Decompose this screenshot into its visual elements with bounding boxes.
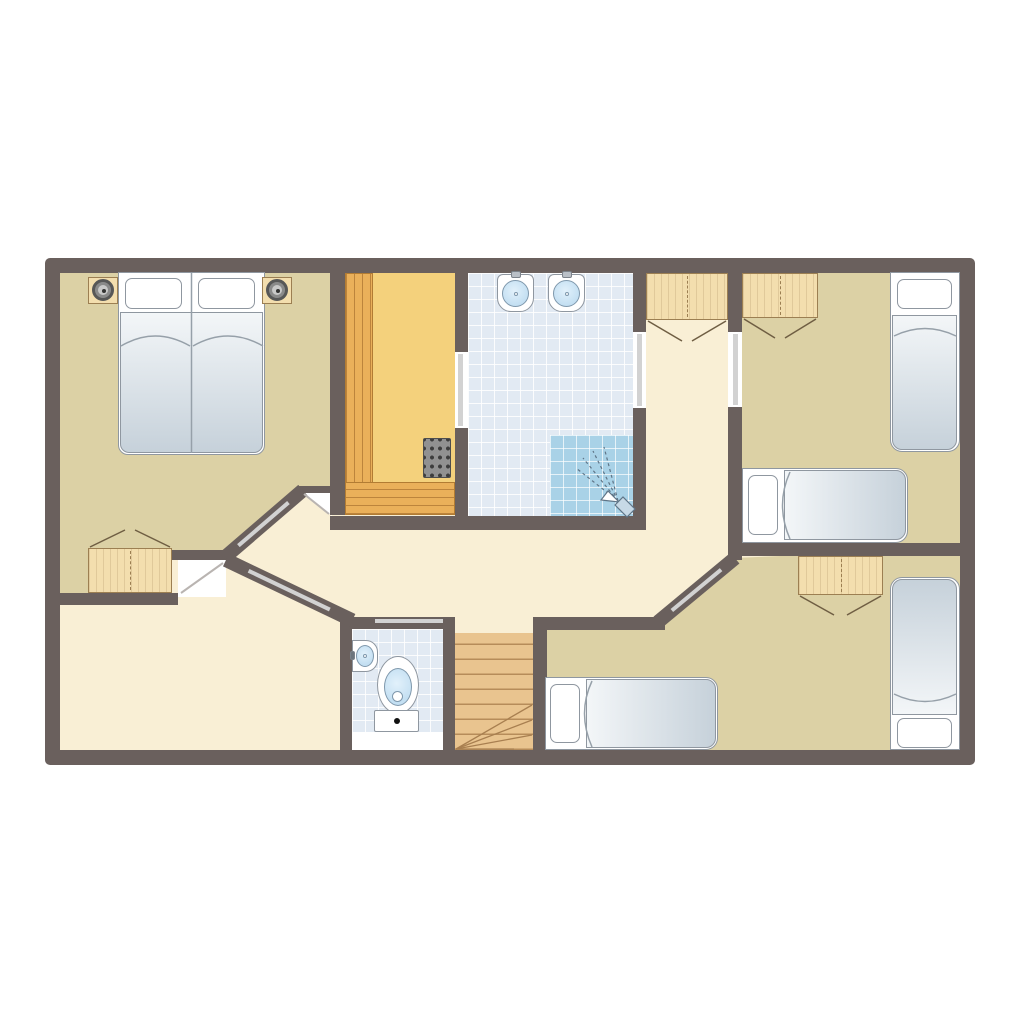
floor-plan-canvas: [0, 0, 1024, 1024]
drain: [565, 292, 569, 296]
wardrobe-split-line: [780, 276, 781, 315]
bed-tr-vertical-duvet: [892, 315, 957, 450]
wall-bedroom-sauna: [330, 273, 345, 515]
wc-hand-basin-faucet: [350, 651, 355, 660]
toilet-flush-hole: [392, 691, 403, 702]
wall-bathroom-left-lower: [455, 428, 468, 517]
wall-sauna-bathroom-bottom: [330, 516, 646, 530]
wall-wc-left: [340, 617, 352, 750]
wall-bathroom-right-lower: [633, 408, 646, 517]
washbasin-left-bowl: [502, 280, 529, 307]
drain: [363, 654, 367, 658]
bed-br-horizontal-pillow: [550, 684, 580, 743]
wc-hand-basin-bowl: [356, 645, 374, 667]
sauna-bench-left: [345, 273, 373, 515]
double-bed-pillow-left: [125, 278, 182, 309]
wardrobe-split-line: [130, 551, 131, 590]
sauna-heater: [423, 438, 451, 478]
shower-area: [550, 435, 633, 517]
wc-glass-panel: [375, 619, 450, 623]
bed-br-horizontal-duvet: [586, 679, 716, 748]
bed-br-vertical-pillow: [897, 718, 952, 748]
door-opening-bottom-left: [178, 560, 226, 597]
wall-bedroom-br-top: [533, 617, 665, 630]
closet-split-line: [687, 276, 688, 317]
lamp-dot: [102, 289, 106, 293]
wall-bedroom-tr-left-lower: [728, 407, 742, 560]
sauna-bench-bottom: [345, 482, 455, 515]
wardrobe-bedroom-tr: [742, 273, 818, 318]
staircase: [455, 633, 533, 750]
wc-floor-white-strip: [352, 732, 443, 750]
floor-plan: [45, 258, 975, 765]
bed-tr-vertical-pillow: [897, 279, 952, 309]
drain: [514, 292, 518, 296]
lamp-left: [92, 279, 114, 301]
sauna-glass-door: [458, 354, 463, 426]
washbasin-right-bowl: [553, 280, 580, 307]
wall-bedroom-tl-bottom: [60, 593, 178, 605]
wall-bathroom-right-upper: [633, 273, 646, 332]
wall-between-right-bedrooms: [735, 543, 960, 556]
washbasin-right-faucet: [562, 271, 572, 278]
double-bed-duvet: [120, 312, 263, 453]
closet-hallway: [646, 273, 728, 320]
wall-bathroom-left-upper: [455, 273, 468, 352]
wardrobe-bedroom-br: [798, 556, 883, 595]
washbasin-left-faucet: [511, 271, 521, 278]
bed-br-vertical-duvet: [892, 579, 957, 715]
bedroom-tr-glass-door: [733, 334, 738, 405]
wall-bedroom-tr-left-upper: [728, 273, 742, 332]
bed-tr-horizontal-duvet: [784, 470, 906, 540]
double-bed-pillow-right: [198, 278, 255, 309]
wardrobe-split-line: [841, 559, 842, 592]
toilet-cistern-button: [394, 718, 400, 724]
wardrobe-bedroom-tl: [88, 548, 172, 593]
bathroom-glass-door: [637, 334, 642, 406]
bed-tr-horizontal-pillow: [748, 475, 778, 535]
lamp-dot: [276, 289, 280, 293]
wall-wc-right: [443, 617, 455, 750]
lamp-right: [266, 279, 288, 301]
